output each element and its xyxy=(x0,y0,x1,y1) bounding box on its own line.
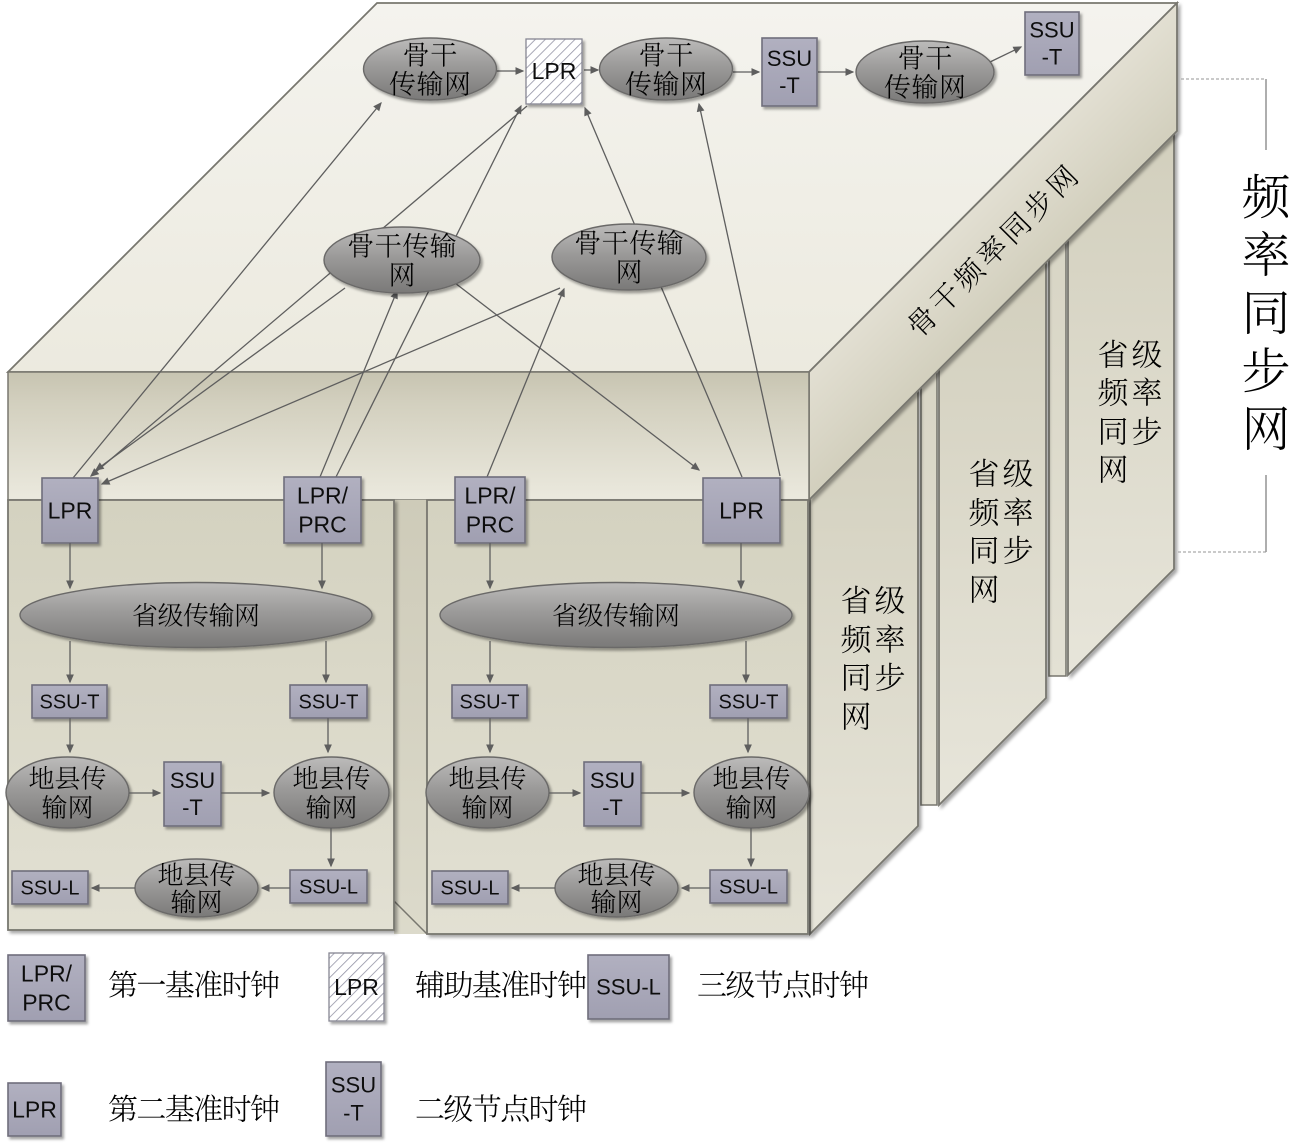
svg-text:SSU-L: SSU-L xyxy=(441,878,500,900)
svg-text:SSU: SSU xyxy=(767,46,812,71)
svg-text:SSU-T: SSU-T xyxy=(460,692,520,714)
svg-text:LPR: LPR xyxy=(12,1097,57,1123)
svg-text:-T: -T xyxy=(602,795,623,820)
svg-text:-T: -T xyxy=(343,1101,364,1126)
svg-text:PRC: PRC xyxy=(298,512,347,538)
svg-text:SSU-L: SSU-L xyxy=(21,878,80,900)
svg-text:SSU: SSU xyxy=(170,768,215,793)
svg-text:LPR/: LPR/ xyxy=(21,961,73,987)
svg-text:-T: -T xyxy=(182,795,203,820)
svg-text:PRC: PRC xyxy=(22,990,71,1016)
svg-text:SSU-T: SSU-T xyxy=(299,692,359,714)
svg-text:-T: -T xyxy=(779,73,800,98)
svg-text:SSU: SSU xyxy=(1029,18,1074,43)
svg-text:LPR: LPR xyxy=(334,974,379,1000)
svg-text:SSU-L: SSU-L xyxy=(596,975,661,1000)
svg-text:LPR: LPR xyxy=(532,58,577,84)
svg-text:LPR: LPR xyxy=(48,498,93,524)
svg-text:SSU-L: SSU-L xyxy=(299,877,358,899)
svg-text:SSU-T: SSU-T xyxy=(719,692,779,714)
svg-text:SSU-L: SSU-L xyxy=(719,877,778,899)
svg-text:SSU: SSU xyxy=(590,768,635,793)
svg-text:-T: -T xyxy=(1042,45,1063,70)
svg-text:SSU: SSU xyxy=(331,1073,376,1098)
svg-text:PRC: PRC xyxy=(466,512,515,538)
svg-text:LPR/: LPR/ xyxy=(464,483,516,509)
svg-text:LPR: LPR xyxy=(719,498,764,524)
svg-text:LPR/: LPR/ xyxy=(297,483,349,509)
svg-text:SSU-T: SSU-T xyxy=(40,692,100,714)
